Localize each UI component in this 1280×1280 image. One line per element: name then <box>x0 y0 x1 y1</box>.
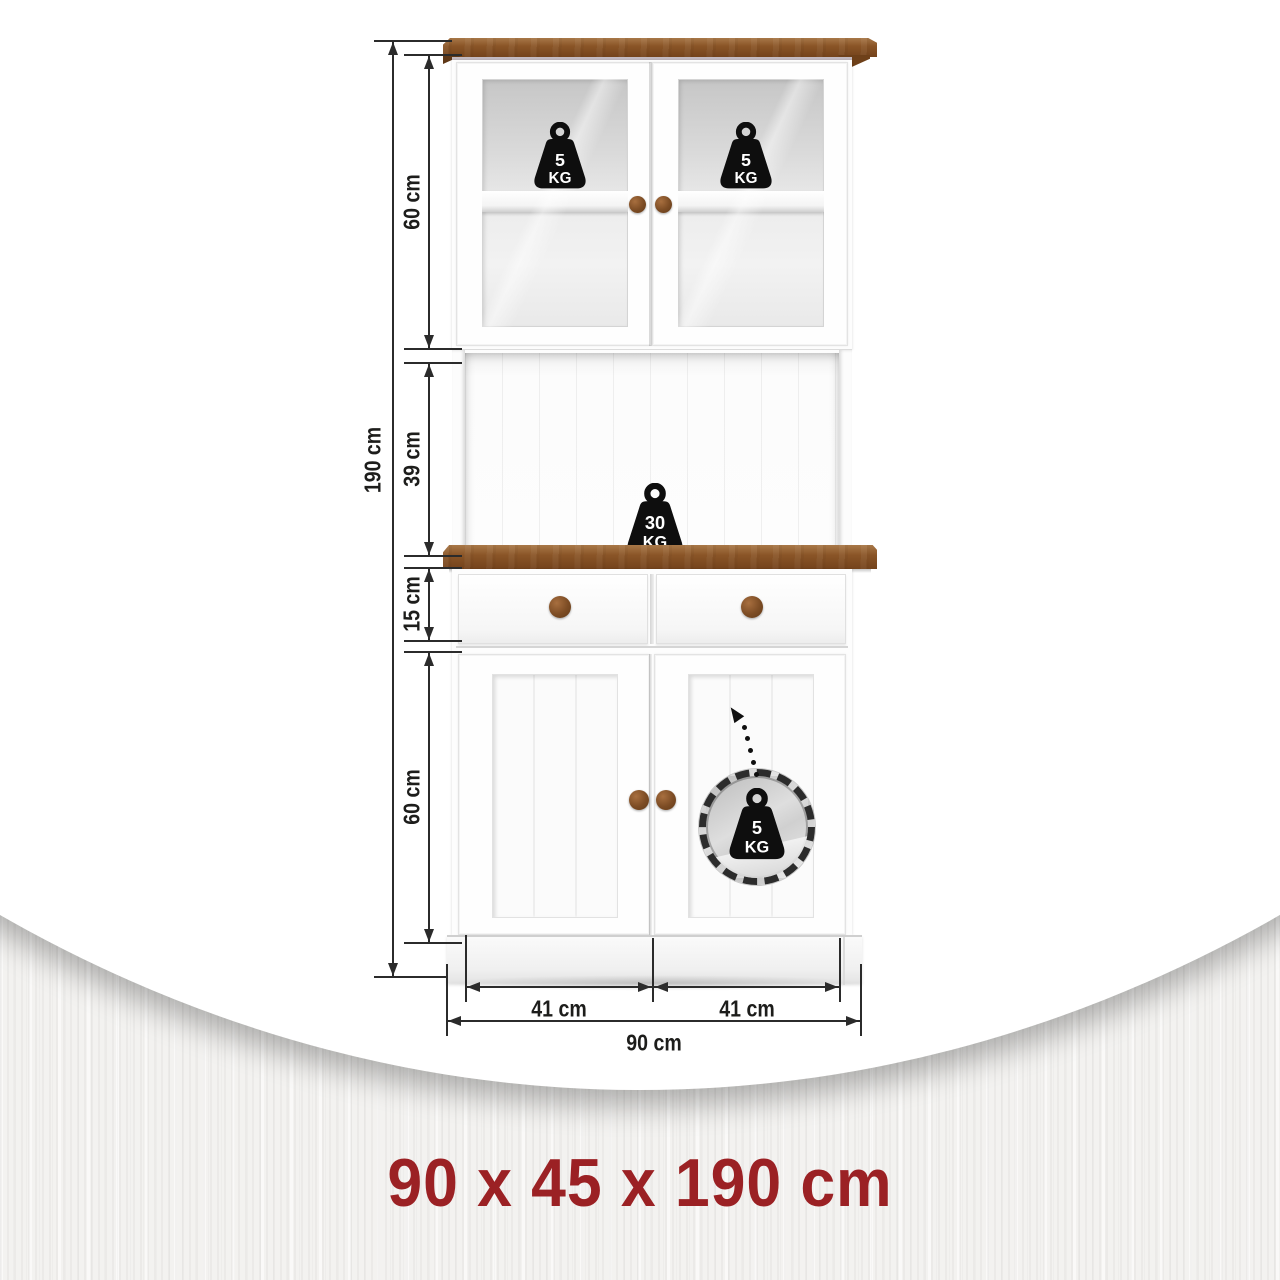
tick-mark <box>839 938 841 1002</box>
arrowhead-icon <box>424 56 434 69</box>
dimension-annotations: 190 cm 60 cm 39 cm 15 cm 60 cm <box>0 0 1280 1280</box>
dim-label-drawer-height: 15 cm <box>399 576 426 631</box>
tick-mark <box>374 40 452 42</box>
product-diagram: 5 KG 5 KG 30 KG <box>0 0 1280 1280</box>
dim-label-total-height: 190 cm <box>360 427 387 493</box>
tick-mark <box>404 942 462 944</box>
arrowhead-icon <box>424 335 434 348</box>
arrowhead-icon <box>424 569 434 582</box>
tick-mark <box>404 640 462 642</box>
arrowhead-icon <box>638 982 651 992</box>
dimensions-summary-text: 90 x 45 x 190 cm <box>387 1144 892 1222</box>
arrowhead-icon <box>825 982 838 992</box>
dim-label-shelf-height: 39 cm <box>399 431 426 486</box>
dim-line-left-door-width <box>466 986 652 988</box>
arrowhead-icon <box>424 364 434 377</box>
dim-line-total-width <box>447 1020 861 1022</box>
dim-label-upper-height: 60 cm <box>399 174 426 229</box>
arrowhead-icon <box>467 982 480 992</box>
dim-line-lower-height <box>428 652 430 943</box>
tick-mark <box>652 938 654 1002</box>
arrowhead-icon <box>424 653 434 666</box>
tick-mark <box>404 348 462 350</box>
dim-label-right-door-width: 41 cm <box>719 996 774 1023</box>
arrowhead-icon <box>388 42 398 55</box>
tick-mark <box>374 976 448 978</box>
dim-line-shelf-height <box>428 363 430 556</box>
tick-mark <box>860 964 862 1036</box>
arrowhead-icon <box>388 963 398 976</box>
tick-mark <box>404 555 462 557</box>
dim-line-right-door-width <box>654 986 839 988</box>
arrowhead-icon <box>655 982 668 992</box>
dim-line-upper-height <box>428 55 430 349</box>
arrowhead-icon <box>424 627 434 640</box>
arrowhead-icon <box>424 542 434 555</box>
dim-label-total-width: 90 cm <box>626 1030 681 1057</box>
dim-line-total-height <box>392 41 394 977</box>
dim-label-left-door-width: 41 cm <box>531 996 586 1023</box>
dim-label-lower-height: 60 cm <box>399 769 426 824</box>
arrowhead-icon <box>448 1016 461 1026</box>
arrowhead-icon <box>424 929 434 942</box>
arrowhead-icon <box>846 1016 859 1026</box>
